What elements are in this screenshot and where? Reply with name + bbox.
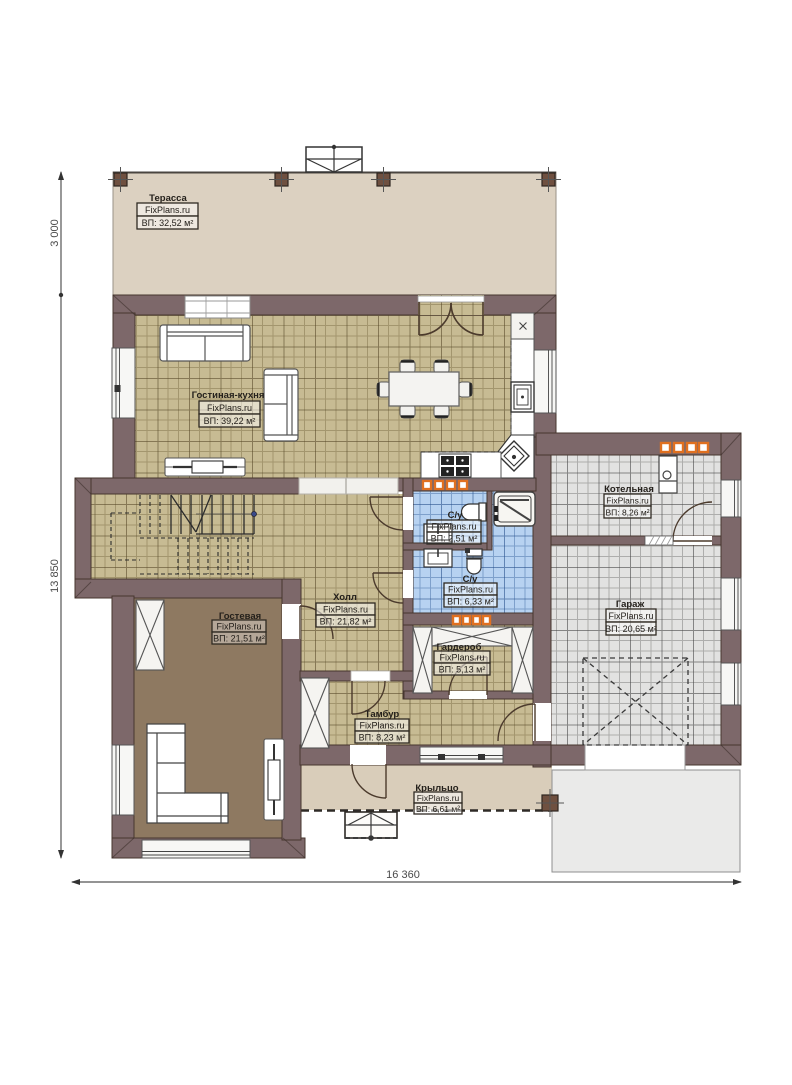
svg-text:16 360: 16 360 — [386, 869, 420, 881]
svg-text:ВП: 2,51 м²: ВП: 2,51 м² — [431, 534, 478, 544]
svg-text:FixPlans.ru: FixPlans.ru — [439, 653, 484, 663]
svg-text:FixPlans.ru: FixPlans.ru — [359, 721, 404, 731]
svg-text:ВП: 21,82 м²: ВП: 21,82 м² — [320, 617, 372, 627]
svg-text:FixPlans.ru: FixPlans.ru — [606, 496, 649, 506]
svg-text:Гараж: Гараж — [616, 599, 645, 610]
svg-text:FixPlans.ru: FixPlans.ru — [417, 793, 460, 803]
svg-text:FixPlans.ru: FixPlans.ru — [207, 403, 252, 413]
svg-text:ВП: 6,61 м²: ВП: 6,61 м² — [416, 804, 460, 814]
svg-text:ВП: 8,23 м²: ВП: 8,23 м² — [359, 733, 406, 743]
svg-text:ВП: 21,51 м²: ВП: 21,51 м² — [213, 634, 265, 644]
svg-text:С/у: С/у — [448, 510, 464, 521]
svg-text:FixPlans.ru: FixPlans.ru — [608, 611, 653, 621]
svg-text:3 000: 3 000 — [49, 219, 61, 247]
svg-text:ВП: 5,13 м²: ВП: 5,13 м² — [439, 665, 486, 675]
svg-text:Гостиная-кухня: Гостиная-кухня — [192, 390, 265, 401]
svg-text:Тамбур: Тамбур — [365, 709, 400, 720]
svg-text:ВП: 20,65 м²: ВП: 20,65 м² — [605, 624, 657, 634]
svg-text:FixPlans.ru: FixPlans.ru — [323, 605, 368, 615]
svg-text:ВП: 8,26 м²: ВП: 8,26 м² — [605, 508, 649, 518]
svg-text:ВП: 39,22 м²: ВП: 39,22 м² — [204, 416, 256, 426]
svg-text:FixPlans.ru: FixPlans.ru — [216, 622, 261, 632]
svg-text:ВП: 6,33 м²: ВП: 6,33 м² — [447, 597, 494, 607]
svg-text:Холл: Холл — [333, 592, 357, 603]
svg-text:FixPlans.ru: FixPlans.ru — [145, 205, 190, 215]
svg-text:13 850: 13 850 — [49, 559, 61, 593]
svg-text:FixPlans.ru: FixPlans.ru — [448, 585, 493, 595]
svg-text:ВП: 32,52 м²: ВП: 32,52 м² — [142, 218, 194, 228]
